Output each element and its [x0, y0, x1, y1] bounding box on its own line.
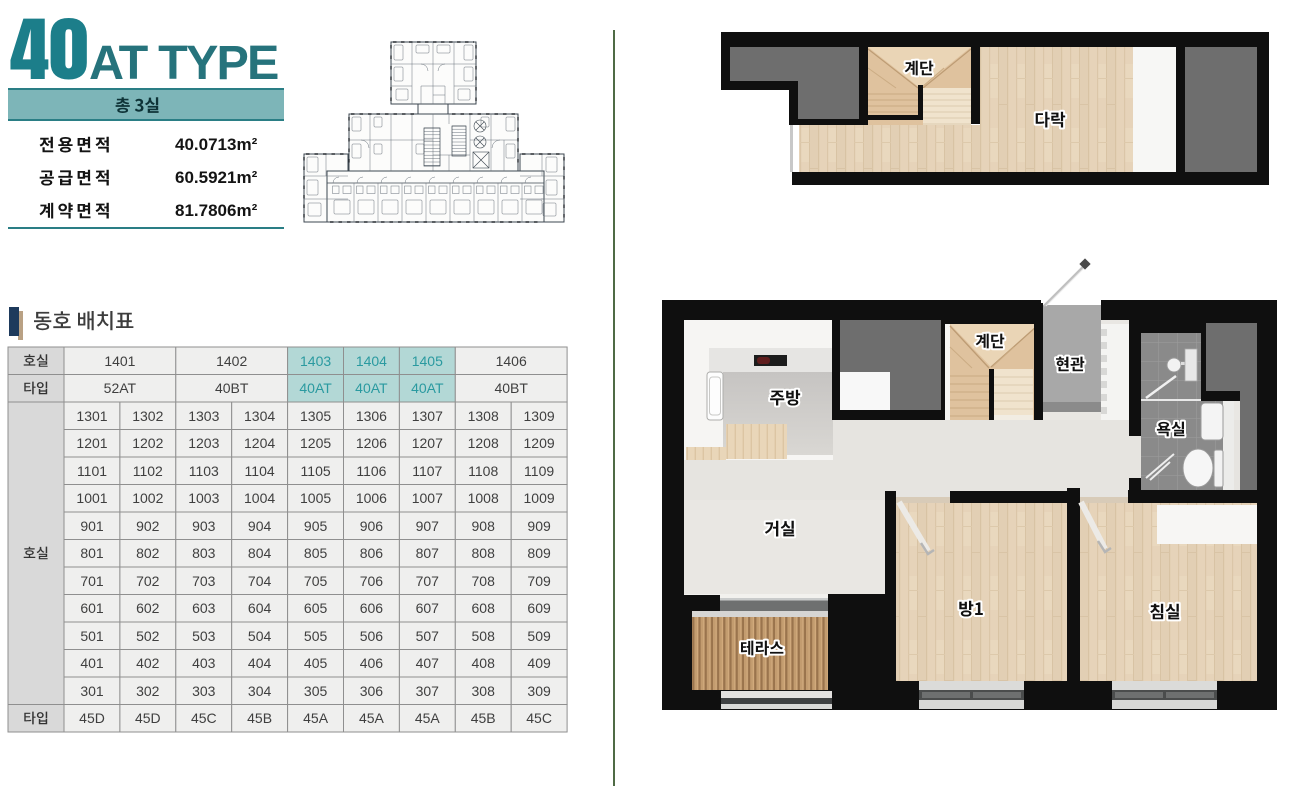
- svg-text:306: 306: [360, 683, 384, 699]
- svg-text:1202: 1202: [132, 435, 163, 451]
- svg-text:808: 808: [472, 545, 496, 561]
- svg-text:1406: 1406: [496, 353, 527, 369]
- svg-text:1206: 1206: [356, 435, 387, 451]
- svg-text:1306: 1306: [356, 408, 387, 424]
- svg-text:1105: 1105: [301, 463, 331, 479]
- svg-text:1204: 1204: [244, 435, 275, 451]
- svg-text:903: 903: [192, 518, 216, 534]
- svg-text:805: 805: [304, 545, 328, 561]
- svg-text:708: 708: [472, 573, 496, 589]
- svg-text:807: 807: [416, 545, 440, 561]
- svg-text:902: 902: [136, 518, 160, 534]
- svg-text:40AT: 40AT: [299, 380, 332, 396]
- svg-text:1009: 1009: [524, 490, 555, 506]
- svg-text:509: 509: [527, 628, 551, 644]
- svg-text:606: 606: [360, 600, 384, 616]
- svg-text:1007: 1007: [412, 490, 443, 506]
- svg-text:308: 308: [472, 683, 496, 699]
- svg-text:1308: 1308: [468, 408, 499, 424]
- svg-text:608: 608: [472, 600, 496, 616]
- svg-text:607: 607: [416, 600, 440, 616]
- svg-text:1103: 1103: [189, 463, 219, 479]
- svg-text:45A: 45A: [415, 710, 441, 726]
- svg-text:1403: 1403: [300, 353, 331, 369]
- svg-text:45D: 45D: [135, 710, 161, 726]
- svg-text:909: 909: [527, 518, 551, 534]
- svg-text:1205: 1205: [300, 435, 331, 451]
- svg-text:601: 601: [80, 600, 104, 616]
- svg-text:1309: 1309: [524, 408, 555, 424]
- svg-text:1304: 1304: [244, 408, 275, 424]
- svg-text:45B: 45B: [247, 710, 272, 726]
- svg-text:45A: 45A: [303, 710, 329, 726]
- svg-text:45C: 45C: [191, 710, 217, 726]
- svg-text:1301: 1301: [76, 408, 107, 424]
- svg-text:1001: 1001: [76, 490, 107, 506]
- svg-text:906: 906: [360, 518, 384, 534]
- svg-text:604: 604: [248, 600, 272, 616]
- svg-text:802: 802: [136, 545, 160, 561]
- svg-text:1003: 1003: [188, 490, 219, 506]
- svg-text:507: 507: [416, 628, 440, 644]
- svg-text:803: 803: [192, 545, 216, 561]
- svg-text:506: 506: [360, 628, 384, 644]
- svg-text:1307: 1307: [412, 408, 443, 424]
- svg-text:303: 303: [192, 683, 216, 699]
- svg-text:709: 709: [527, 573, 551, 589]
- svg-text:304: 304: [248, 683, 272, 699]
- svg-text:405: 405: [304, 655, 328, 671]
- svg-text:45C: 45C: [526, 710, 552, 726]
- svg-text:508: 508: [472, 628, 496, 644]
- svg-text:501: 501: [80, 628, 104, 644]
- svg-text:1108: 1108: [468, 463, 498, 479]
- svg-text:1201: 1201: [76, 435, 107, 451]
- svg-text:602: 602: [136, 600, 160, 616]
- svg-text:1405: 1405: [412, 353, 443, 369]
- svg-text:1002: 1002: [132, 490, 163, 506]
- svg-text:406: 406: [360, 655, 384, 671]
- svg-text:806: 806: [360, 545, 384, 561]
- svg-text:702: 702: [136, 573, 160, 589]
- svg-text:703: 703: [192, 573, 216, 589]
- svg-text:301: 301: [80, 683, 104, 699]
- svg-text:901: 901: [80, 518, 104, 534]
- svg-text:904: 904: [248, 518, 272, 534]
- svg-text:1401: 1401: [104, 353, 135, 369]
- svg-text:705: 705: [304, 573, 328, 589]
- svg-text:40AT: 40AT: [411, 380, 444, 396]
- svg-text:1209: 1209: [524, 435, 555, 451]
- svg-text:908: 908: [472, 518, 496, 534]
- svg-text:309: 309: [527, 683, 551, 699]
- svg-text:809: 809: [527, 545, 551, 561]
- svg-text:52AT: 52AT: [104, 380, 137, 396]
- svg-text:302: 302: [136, 683, 160, 699]
- svg-text:605: 605: [304, 600, 328, 616]
- svg-text:701: 701: [80, 573, 104, 589]
- svg-text:45B: 45B: [471, 710, 496, 726]
- svg-text:408: 408: [472, 655, 496, 671]
- svg-text:40AT: 40AT: [355, 380, 388, 396]
- svg-text:404: 404: [248, 655, 272, 671]
- svg-text:407: 407: [416, 655, 440, 671]
- svg-text:504: 504: [248, 628, 272, 644]
- svg-text:706: 706: [360, 573, 384, 589]
- svg-text:502: 502: [136, 628, 160, 644]
- svg-text:45A: 45A: [359, 710, 385, 726]
- svg-text:1305: 1305: [300, 408, 331, 424]
- svg-text:1404: 1404: [356, 353, 387, 369]
- svg-text:1004: 1004: [244, 490, 275, 506]
- svg-text:707: 707: [416, 573, 440, 589]
- svg-text:1006: 1006: [356, 490, 387, 506]
- svg-text:1107: 1107: [412, 463, 442, 479]
- svg-text:401: 401: [80, 655, 104, 671]
- svg-text:1207: 1207: [412, 435, 443, 451]
- svg-text:403: 403: [192, 655, 216, 671]
- svg-text:307: 307: [416, 683, 440, 699]
- svg-text:1109: 1109: [524, 463, 554, 479]
- svg-text:1102: 1102: [133, 463, 163, 479]
- svg-text:1008: 1008: [468, 490, 499, 506]
- svg-text:1208: 1208: [468, 435, 499, 451]
- svg-text:505: 505: [304, 628, 328, 644]
- svg-text:905: 905: [304, 518, 328, 534]
- svg-text:1106: 1106: [356, 463, 386, 479]
- svg-text:704: 704: [248, 573, 272, 589]
- svg-text:402: 402: [136, 655, 160, 671]
- svg-text:1203: 1203: [188, 435, 219, 451]
- svg-text:45D: 45D: [79, 710, 105, 726]
- svg-text:40BT: 40BT: [494, 380, 528, 396]
- svg-text:503: 503: [192, 628, 216, 644]
- svg-text:40BT: 40BT: [215, 380, 249, 396]
- svg-text:1005: 1005: [300, 490, 331, 506]
- svg-text:1303: 1303: [188, 408, 219, 424]
- svg-text:1101: 1101: [77, 463, 107, 479]
- svg-text:907: 907: [416, 518, 440, 534]
- svg-text:801: 801: [80, 545, 104, 561]
- svg-text:1104: 1104: [245, 463, 275, 479]
- svg-text:609: 609: [527, 600, 551, 616]
- svg-text:603: 603: [192, 600, 216, 616]
- svg-text:804: 804: [248, 545, 272, 561]
- svg-text:1302: 1302: [132, 408, 163, 424]
- svg-text:1402: 1402: [216, 353, 247, 369]
- svg-text:305: 305: [304, 683, 328, 699]
- svg-text:409: 409: [527, 655, 551, 671]
